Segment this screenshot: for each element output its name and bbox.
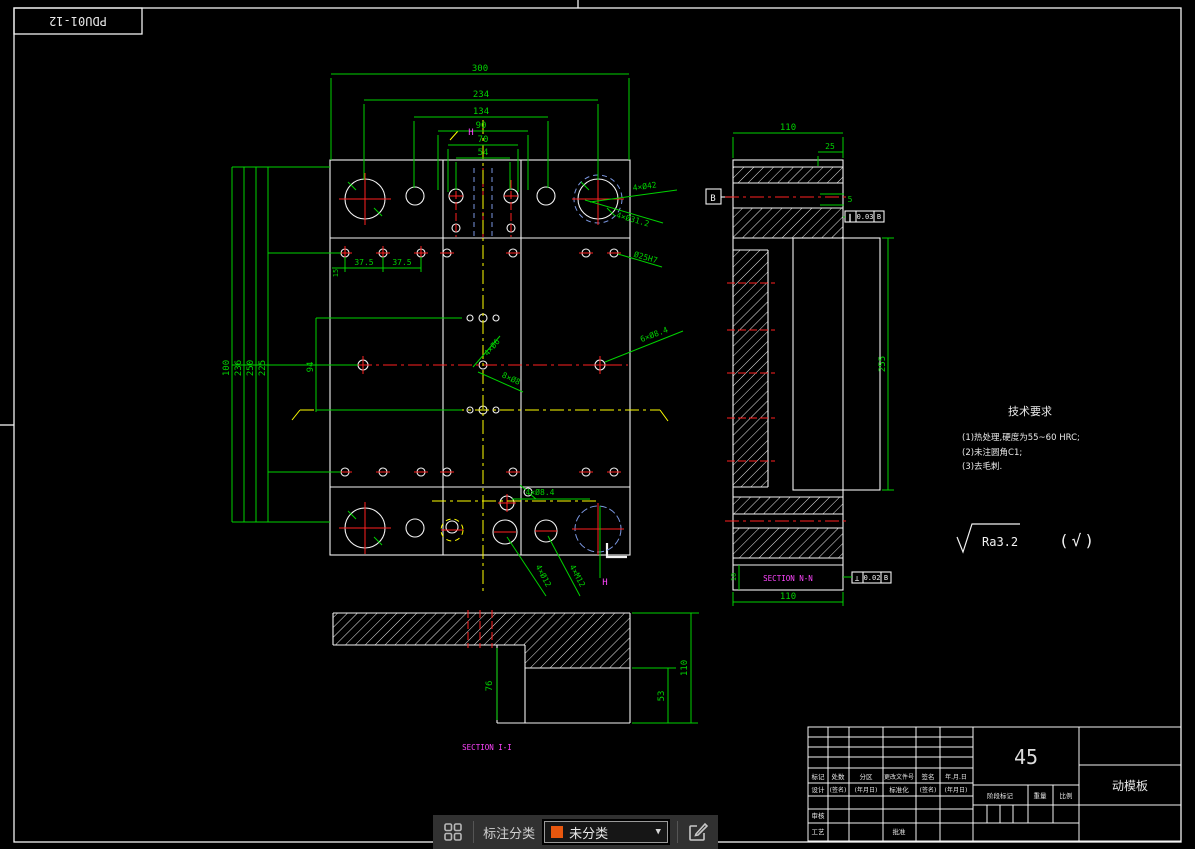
tb-date: 年.月.日 xyxy=(945,773,967,781)
dim-236: 236 xyxy=(234,360,244,376)
section-mark-h-bottom: H xyxy=(602,578,607,588)
tech-req-title: 技术要求 xyxy=(1008,405,1052,418)
fcf-bottom-datum: B xyxy=(884,574,888,582)
fcf-bottom: ⊥ 0.02 B xyxy=(855,574,889,583)
tb-scale: 比例 xyxy=(1060,791,1073,800)
plan-view-dim-text: 300 234 134 90 70 54 100 236 250 225 94 … xyxy=(222,64,669,589)
section-i-i-label: SECTION I-I xyxy=(462,743,512,752)
leader-hole-right: Ø25H7 xyxy=(633,249,659,265)
dim-37-5-b: 37.5 xyxy=(392,258,411,267)
dim-15: 15 xyxy=(332,269,340,277)
plan-view-section-marks: H H xyxy=(468,128,607,588)
fcf-top: ∥ 0.03 B xyxy=(848,213,881,222)
leader-guide-inner: 4×Ø31.2 xyxy=(615,210,650,229)
tb-sign-paren-2: (签名) xyxy=(920,786,937,794)
tech-req-item-2: (2)未注圆角C1; xyxy=(962,447,1022,458)
dim-234: 234 xyxy=(473,90,489,100)
dim-side-10: 10 xyxy=(730,573,738,581)
leader-guide-outer: 4×Ø42 xyxy=(632,179,657,192)
surface-ra-value: Ra3.2 xyxy=(982,535,1018,549)
leader-center-up: 4×Ø6 xyxy=(482,336,502,357)
tech-requirements: 技术要求 (1)热处理,硬度为55~60 HRC; (2)未注圆角C1; (3)… xyxy=(962,405,1080,472)
tb-weight: 重量 xyxy=(1034,792,1048,800)
dim-54: 54 xyxy=(478,148,489,158)
dim-250: 250 xyxy=(246,360,256,376)
toolbar-separator xyxy=(677,821,678,843)
dim-134: 134 xyxy=(473,107,489,117)
tb-stage-mark: 阶段标记 xyxy=(987,791,1014,800)
tb-standardize: 标准化 xyxy=(889,785,909,794)
tb-date-paren-2: (年月日) xyxy=(945,786,968,794)
fcf-bottom-symbol: ⊥ xyxy=(855,574,860,583)
dim-90: 90 xyxy=(476,121,487,131)
dim-300: 300 xyxy=(472,64,488,74)
tb-part-name: 动模板 xyxy=(1112,779,1148,793)
sheet-frame xyxy=(0,0,1181,842)
title-block-text: 45 动模板 标记 处数 分区 更改文件号 签名 年.月.日 设计 (签名) (… xyxy=(812,745,1149,836)
surface-bracket-symbol: (√) xyxy=(1059,531,1097,550)
tech-req-item-1: (1)热处理,硬度为55~60 HRC; xyxy=(962,432,1080,443)
tb-count: 处数 xyxy=(832,772,846,781)
surface-finish-symbol: Ra3.2 (√) xyxy=(957,524,1097,552)
tb-design: 设计 xyxy=(812,785,826,794)
dim-37-5-a: 37.5 xyxy=(354,258,373,267)
dim-side-5: 5 xyxy=(848,195,853,204)
edit-annotation-icon[interactable] xyxy=(687,820,710,844)
fcf-bottom-tolerance: 0.02 xyxy=(864,574,881,582)
leader-center-down: 8×Ø8 xyxy=(500,370,522,387)
drawing-canvas[interactable]: PDU01-12 xyxy=(0,0,1195,849)
category-dropdown-value: 未分类 xyxy=(569,823,649,842)
tech-req-item-3: (3)去毛刺. xyxy=(962,461,1002,472)
cad-viewport: PDU01-12 xyxy=(0,0,1195,849)
tb-material: 45 xyxy=(1014,745,1038,769)
category-color-swatch xyxy=(551,826,563,838)
dim-94: 94 xyxy=(306,362,316,373)
bottom-view-hatch xyxy=(333,613,630,668)
dim-bottom-76: 76 xyxy=(485,681,495,692)
leader-bottom-d2: 4×M12 xyxy=(568,563,587,589)
fcf-top-tolerance: 0.03 xyxy=(857,213,874,221)
leader-bottom-d1: 4×Ø12 xyxy=(534,563,554,589)
chevron-down-icon: ▼ xyxy=(656,827,661,837)
category-dropdown[interactable]: 未分类 ▼ xyxy=(544,821,668,843)
annotation-category-label: 标注分类 xyxy=(483,823,535,842)
leader-mid-right: 6×Ø8.4 xyxy=(639,324,670,344)
tb-zone: 分区 xyxy=(860,772,874,781)
dim-100: 100 xyxy=(222,360,232,376)
fcf-top-symbol: ∥ xyxy=(848,213,852,222)
plan-view-centerlines-yellow xyxy=(292,120,668,592)
tb-change-file: 更改文件号 xyxy=(884,773,914,781)
leader-bottom-h: 4×Ø8.4 xyxy=(526,487,555,497)
category-grid-icon[interactable] xyxy=(441,820,464,844)
fcf-top-datum: B xyxy=(877,213,881,221)
plan-view-dims xyxy=(232,74,683,596)
dim-70: 70 xyxy=(478,135,489,145)
tb-mark: 标记 xyxy=(812,772,826,781)
dim-bottom-110: 110 xyxy=(680,660,690,676)
dim-side-110-bottom: 110 xyxy=(780,592,796,602)
section-n-n-label: SECTION N-N xyxy=(763,574,813,583)
dim-side-255: 255 xyxy=(878,356,888,372)
tb-sign-paren: (签名) xyxy=(830,786,847,794)
dim-side-25: 25 xyxy=(825,142,835,151)
dim-225: 225 xyxy=(258,360,268,376)
tb-audit: 审核 xyxy=(812,811,826,820)
section-mark-h-top: H xyxy=(468,128,473,138)
tb-sign: 签名 xyxy=(922,772,935,781)
tb-craft: 工艺 xyxy=(812,828,826,836)
toolbar-separator xyxy=(473,821,474,843)
sheet-corner-label: PDU01-12 xyxy=(49,14,107,28)
tb-approve: 批准 xyxy=(893,827,907,836)
dim-bottom-53: 53 xyxy=(657,691,667,702)
side-view-hatch xyxy=(733,167,843,558)
tb-date-paren: (年月日) xyxy=(855,786,878,794)
datum-b-label: B xyxy=(710,194,715,204)
dim-side-110-top: 110 xyxy=(780,123,796,133)
annotation-toolbar: 标注分类 未分类 ▼ xyxy=(433,815,718,849)
